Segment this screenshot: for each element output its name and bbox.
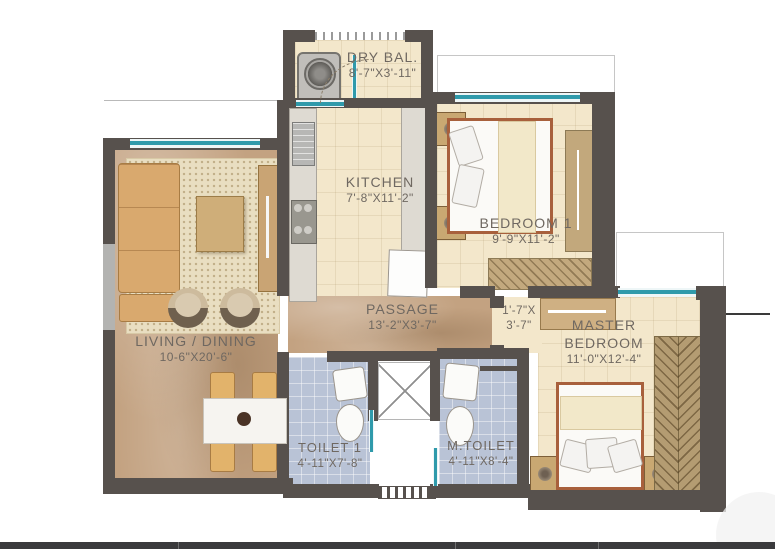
label-niche-dims: 1'-7"X 3'-7" [493,304,545,334]
wardrobe-hangers-right [678,337,701,491]
label-kitchen: KITCHEN 7'-8"X11'-2" [318,173,442,207]
wall [375,351,433,361]
room-name: PASSAGE [330,300,475,318]
table-centerpiece [237,412,251,426]
fridge [387,249,429,297]
entrance-threshold [378,486,436,499]
master-blanket [560,396,642,430]
balcony-louver [315,32,405,40]
duct-shaft [378,362,432,420]
sofa [118,163,180,293]
label-passage: PASSAGE 13'-2"X3'-7" [330,300,475,334]
wall [437,348,525,359]
wall [277,100,289,296]
label-dry-balcony: DRY BAL. 8'-7"X3'-11" [330,48,435,82]
wall [430,351,440,421]
bedroom1-window [455,93,580,102]
kitchen-sink [292,122,315,166]
room-dims: 9'-9"X11'-2" [440,232,612,248]
label-toilet1: TOILET 1 4'-11"X7'-8" [287,440,373,472]
room-dims: 10-6"X20'-6" [115,350,277,366]
label-living-dining: LIVING / DINING 10-6"X20'-6" [115,332,277,366]
video-progress-bar[interactable] [0,542,775,549]
chapter-marker [598,542,599,549]
chajja-box-master [616,232,724,290]
armchair-left [168,288,208,328]
room-dims: 4'-11"X8'-4" [436,455,526,470]
room-name: KITCHEN [318,173,442,191]
stove-burner [294,226,302,234]
label-m-toilet: M.TOILET 4'-11"X8'-4" [436,438,526,470]
wall [103,478,293,494]
living-window [130,139,260,148]
toilet1-washbasin [332,366,368,402]
room-name: M.TOILET [436,438,526,455]
stove-burner [294,204,302,212]
living-side-window [103,244,115,330]
chapter-marker [178,542,179,549]
niche-dims-line1: 1'-7"X [493,304,545,319]
room-dims: 8'-7"X3'-11" [330,66,435,82]
room-dims: 13'-2"X3'-7" [330,318,475,334]
dining-chair-bottom-left [210,440,235,472]
room-name: BEDROOM 1 [440,214,612,232]
floor-plan-canvas: DRY BAL. 8'-7"X3'-11" KITCHEN 7'-8"X11'-… [0,0,775,549]
room-dims: 7'-8"X11'-2" [318,191,442,207]
room-name: DRY BAL. [330,48,435,66]
room-name: TOILET 1 [287,440,373,457]
chajja-line [104,100,285,101]
chapter-marker [455,542,456,549]
room-dims: 4'-11"X7'-8" [287,457,373,472]
armchair-right [220,288,260,328]
master-console-top [548,310,606,313]
wall [283,30,315,42]
stove-burner [304,204,312,212]
wall [528,490,726,510]
room-name: LIVING / DINING [115,332,277,350]
wall [592,92,615,290]
dining-chair-bottom-right [252,440,277,472]
master-window [618,288,698,297]
tv-screen [266,196,269,258]
stove-burner [304,226,312,234]
room-name: MASTER BEDROOM [546,316,662,352]
niche-dims-line2: 3'-7" [493,319,545,334]
wall [700,295,726,512]
label-bedroom1: BEDROOM 1 9'-9"X11'-2" [440,214,612,248]
m-toilet-washbasin [442,362,480,401]
wall [430,484,530,498]
label-master-bedroom: MASTER BEDROOM 11'-0"X12'-4" [546,316,662,368]
chajja-box-bedroom1 [437,55,615,95]
wall [528,286,620,298]
room-dims: 11'-0"X12'-4" [546,352,662,368]
wall [283,484,379,498]
coffee-table [196,196,244,252]
entrance-lobby-floor [378,418,430,486]
